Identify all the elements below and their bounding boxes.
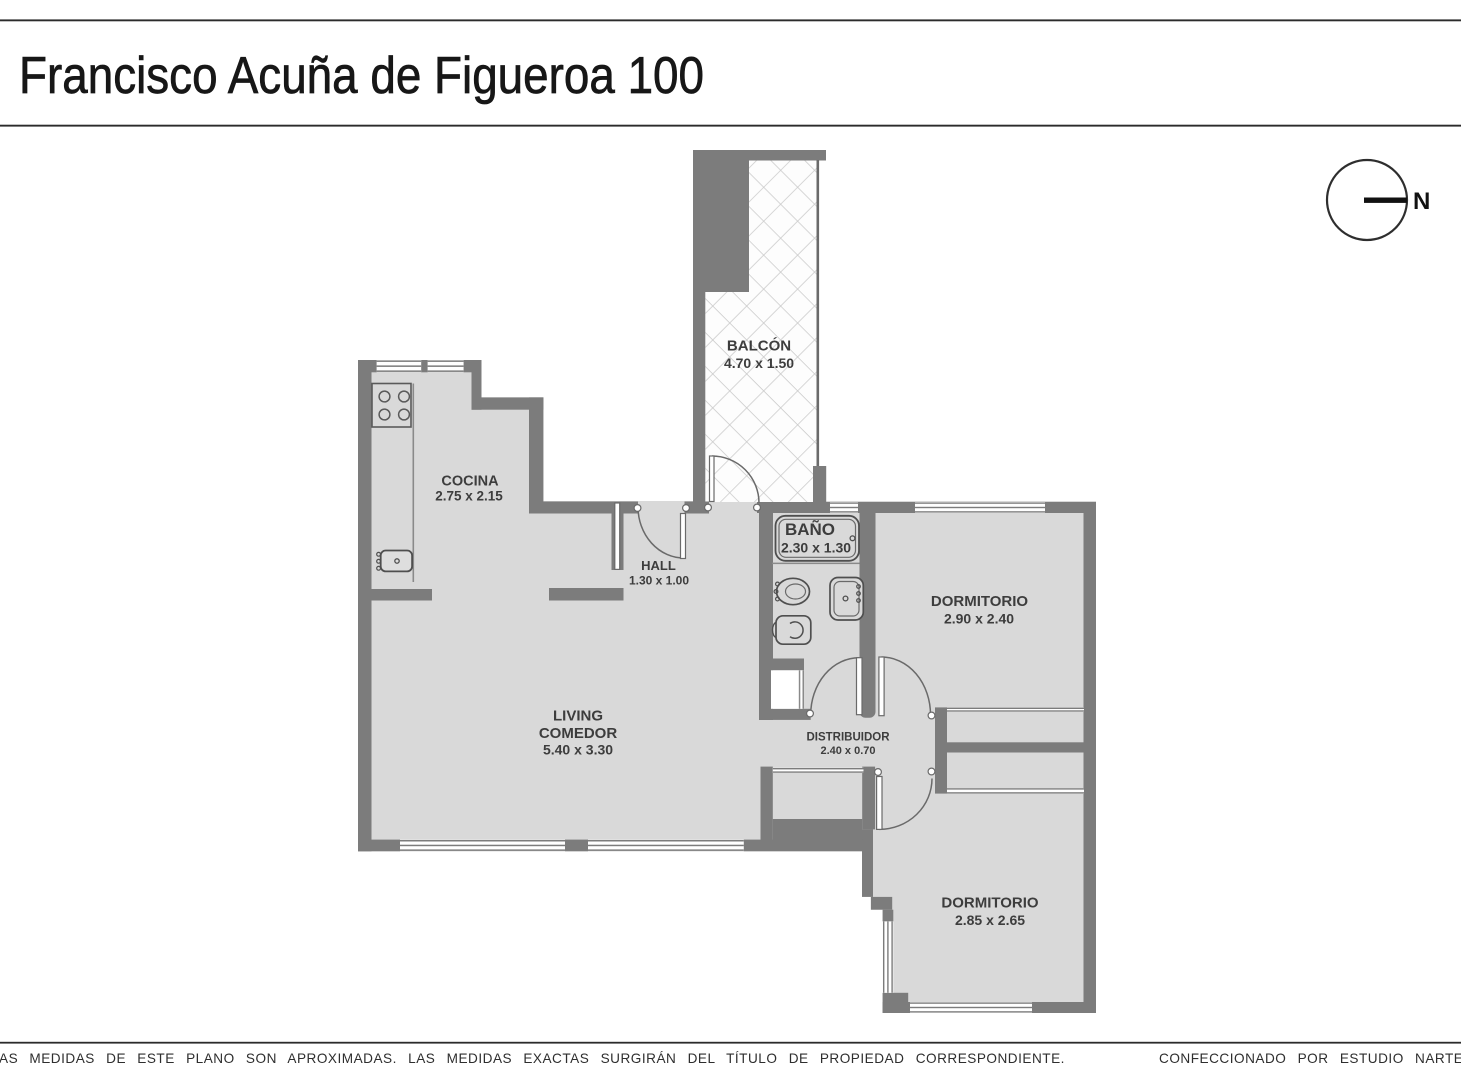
svg-text:2.30 x 1.30: 2.30 x 1.30 bbox=[781, 540, 851, 556]
svg-text:Francisco Acuña de Figueroa 10: Francisco Acuña de Figueroa 100 bbox=[19, 47, 704, 105]
svg-text:COMEDOR: COMEDOR bbox=[539, 725, 618, 742]
svg-text:1.30 x 1.00: 1.30 x 1.00 bbox=[629, 574, 689, 588]
svg-text:DORMITORIO: DORMITORIO bbox=[941, 895, 1039, 912]
svg-text:2.75 x 2.15: 2.75 x 2.15 bbox=[435, 489, 503, 504]
svg-text:4.70 x 1.50: 4.70 x 1.50 bbox=[724, 355, 794, 371]
svg-text:BAÑO: BAÑO bbox=[785, 519, 835, 539]
svg-text:COCINA: COCINA bbox=[441, 474, 499, 490]
svg-text:2.90 x 2.40: 2.90 x 2.40 bbox=[944, 611, 1014, 627]
svg-text:BALCÓN: BALCÓN bbox=[727, 337, 791, 355]
svg-text:DISTRIBUIDOR: DISTRIBUIDOR bbox=[806, 732, 890, 744]
svg-text:2.40 x 0.70: 2.40 x 0.70 bbox=[820, 745, 875, 757]
svg-text:LIVING: LIVING bbox=[553, 708, 603, 725]
svg-text:DORMITORIO: DORMITORIO bbox=[931, 593, 1029, 610]
svg-text:AS MEDIDAS DE ESTE PLANO SON: AS MEDIDAS DE ESTE PLANO SON APROXIMADAS… bbox=[0, 1051, 1065, 1066]
svg-text:CONFECCIONADO POR ESTUDIO NART: CONFECCIONADO POR ESTUDIO NARTELLI bbox=[1159, 1051, 1461, 1066]
svg-text:HALL: HALL bbox=[641, 558, 676, 573]
svg-text:N: N bbox=[1413, 188, 1430, 215]
svg-text:2.85 x 2.65: 2.85 x 2.65 bbox=[955, 912, 1025, 928]
svg-text:5.40 x 3.30: 5.40 x 3.30 bbox=[543, 742, 613, 758]
